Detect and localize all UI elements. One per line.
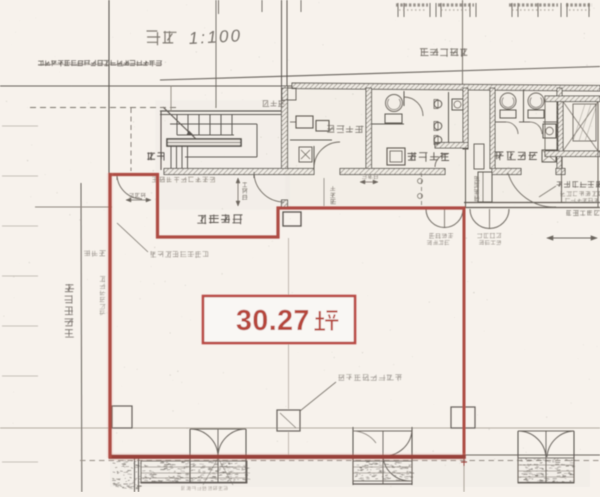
svg-text:30.27: 30.27 xyxy=(236,305,310,337)
svg-text:1:100: 1:100 xyxy=(188,26,242,48)
